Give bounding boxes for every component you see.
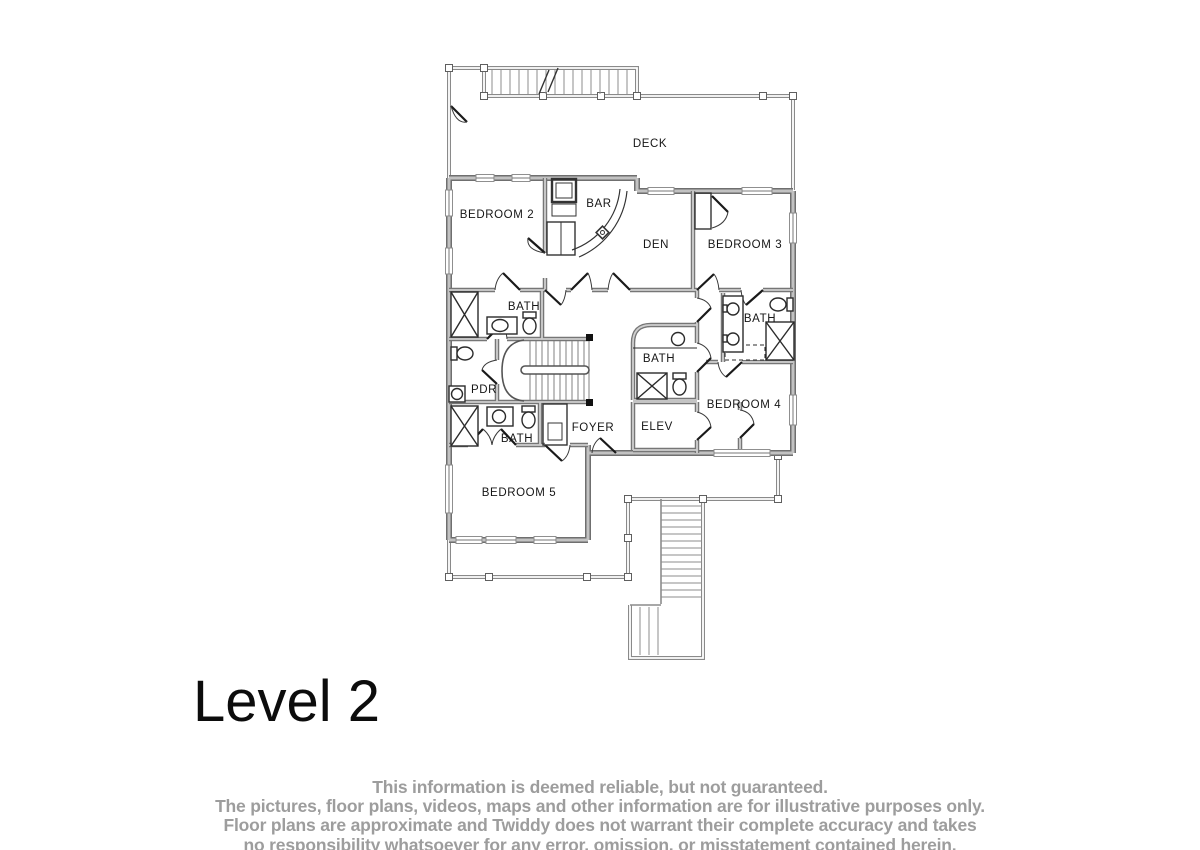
room-label-den: DEN	[643, 239, 669, 251]
room-label-elev: ELEV	[641, 421, 673, 433]
interior-staircase	[502, 334, 593, 406]
floor-plan-drawing: DECK BEDROOM 2 BAR DEN BEDROOM 3 BATH BA…	[0, 0, 1200, 850]
room-label-bath-center: BATH	[643, 353, 675, 365]
disclaimer-line-2: The pictures, floor plans, videos, maps …	[0, 797, 1200, 816]
disclaimer-line-4: no responsibility whatsoever for any err…	[0, 836, 1200, 850]
room-label-bath-lower-left: BATH	[501, 433, 533, 445]
room-label-bedroom2: BEDROOM 2	[460, 209, 534, 221]
deck-stairs	[492, 68, 627, 94]
room-label-bath-right: BATH	[744, 313, 776, 325]
bathroom-fixtures	[449, 292, 794, 446]
room-label-bedroom3: BEDROOM 3	[708, 239, 782, 251]
room-label-bar: BAR	[586, 198, 611, 210]
room-label-deck: DECK	[633, 138, 667, 150]
room-label-bedroom5: BEDROOM 5	[482, 487, 556, 499]
disclaimer-line-3: Floor plans are approximate and Twiddy d…	[0, 816, 1200, 835]
page-title: Level 2	[193, 668, 380, 735]
disclaimer-line-1: This information is deemed reliable, but…	[0, 778, 1200, 797]
bar-counter	[543, 179, 711, 445]
room-label-pdr: PDR	[471, 384, 497, 396]
room-label-bedroom4: BEDROOM 4	[707, 399, 781, 411]
room-label-foyer: FOYER	[572, 422, 615, 434]
exterior-staircase	[630, 499, 702, 655]
room-label-bath-upper-left: BATH	[508, 301, 540, 313]
disclaimer-text: This information is deemed reliable, but…	[0, 778, 1200, 850]
floor-plan-page: DECK BEDROOM 2 BAR DEN BEDROOM 3 BATH BA…	[0, 0, 1200, 850]
